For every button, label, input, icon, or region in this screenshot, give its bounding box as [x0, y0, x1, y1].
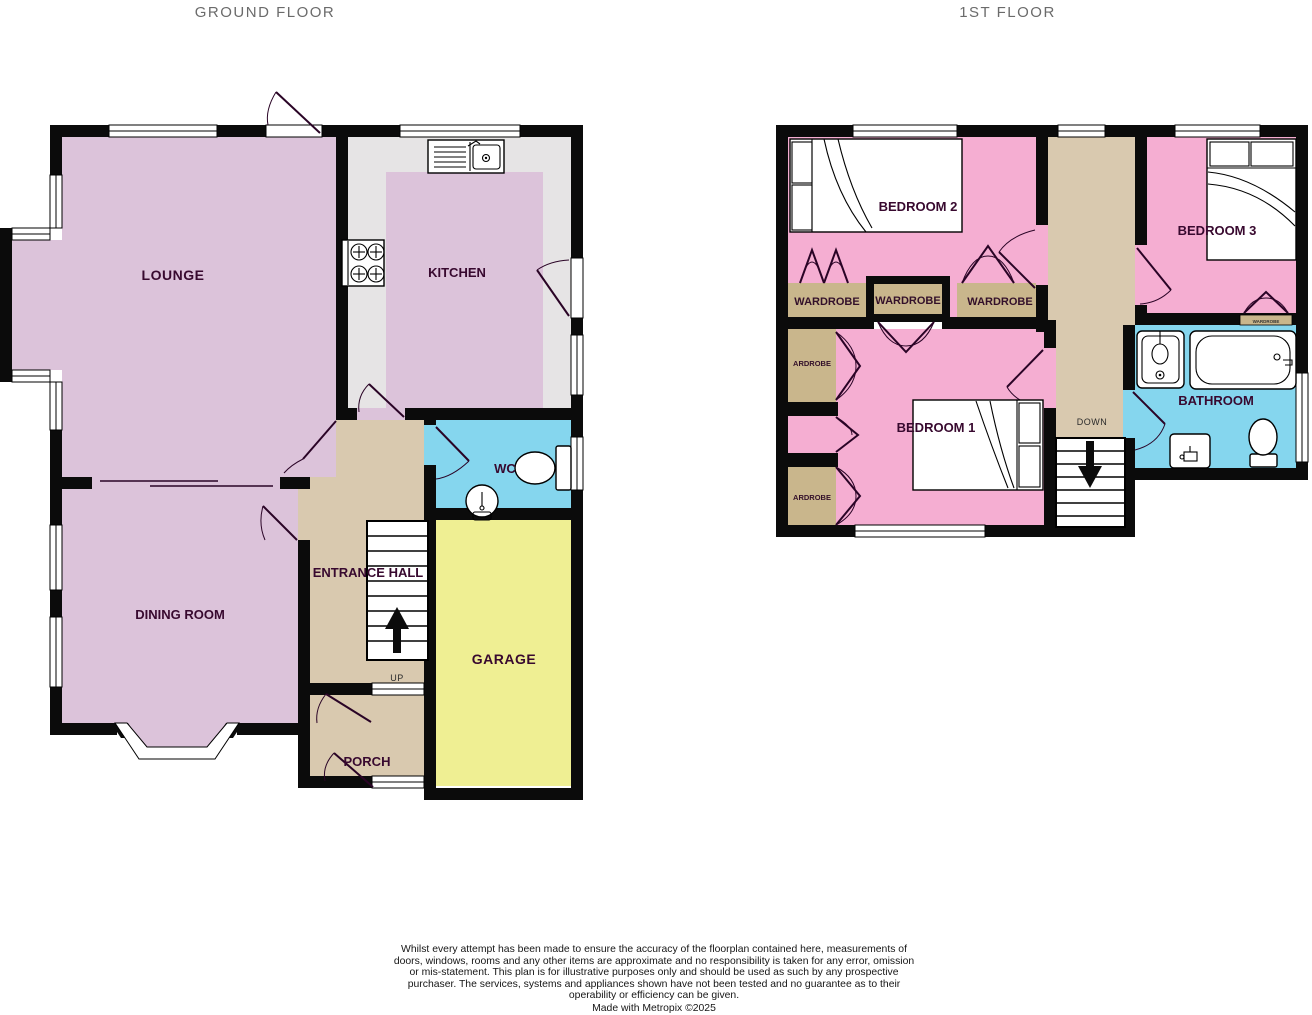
window	[109, 125, 217, 137]
toilet-icon	[1249, 419, 1277, 467]
bath-icon	[1190, 331, 1296, 389]
window	[571, 437, 583, 490]
wardrobe-label: WARDROBE	[794, 296, 859, 308]
window	[50, 525, 62, 590]
window	[1175, 125, 1260, 137]
stairs-down	[1056, 438, 1125, 527]
room-lounge-bay	[12, 240, 62, 370]
ground-floor-title: GROUND FLOOR	[155, 4, 375, 21]
wardrobe-label: WARDROBE	[875, 295, 940, 307]
window	[571, 335, 583, 395]
stairs-up	[367, 521, 428, 660]
window	[50, 617, 62, 687]
credit-text: Made with Metropix ©2025	[393, 1003, 915, 1015]
garage-label: GARAGE	[472, 651, 536, 667]
window	[50, 175, 62, 228]
bedroom-1-label: BEDROOM 1	[897, 420, 976, 435]
bathroom-label: BATHROOM	[1178, 393, 1254, 408]
bed-icon	[1207, 139, 1296, 260]
first-floor-plan: BEDROOM 2 BEDROOM 3 BEDROOM 1 BATHROOM W…	[776, 125, 1308, 537]
lounge-dining-opening	[92, 477, 280, 489]
floorplan-svg: LOUNGE KITCHEN DINING ROOM ENTRANCE HALL…	[0, 0, 1312, 1015]
porch-label: PORCH	[344, 754, 391, 769]
floorplan-page: GROUND FLOOR 1ST FLOOR	[0, 0, 1312, 1015]
dining-room-label: DINING ROOM	[135, 607, 225, 622]
kitchen-label: KITCHEN	[428, 265, 486, 280]
disclaimer-text: Whilst every attempt has been made to en…	[393, 944, 915, 1002]
bed-icon	[790, 139, 962, 232]
lounge-label: LOUNGE	[142, 267, 205, 283]
window	[1296, 373, 1308, 462]
window	[12, 370, 50, 382]
up-label: UP	[390, 673, 404, 683]
first-floor-title: 1ST FLOOR	[900, 4, 1115, 21]
vanity-unit-icon	[1170, 434, 1210, 468]
hall-upper	[348, 420, 424, 489]
bed-icon	[913, 400, 1043, 490]
bathroom-sink-icon	[1137, 331, 1184, 388]
ground-floor-rooms	[12, 137, 571, 786]
window	[853, 125, 957, 137]
porch-inner-opening	[372, 683, 424, 695]
sink-icon	[428, 140, 504, 173]
window	[400, 125, 520, 137]
wardrobe-label: WARDROBE	[967, 296, 1032, 308]
window	[50, 382, 62, 430]
stove-icon	[342, 240, 384, 286]
entrance-hall-label: ENTRANCE HALL	[313, 565, 424, 580]
down-label: DOWN	[1077, 417, 1108, 427]
window	[12, 228, 50, 240]
wardrobe-label-small: ARDROBE	[793, 493, 831, 502]
bedroom-2-label: BEDROOM 2	[879, 199, 958, 214]
window	[855, 525, 985, 537]
bedroom-3-label: BEDROOM 3	[1178, 223, 1257, 238]
porch-front-door	[372, 776, 424, 788]
ground-floor-plan: LOUNGE KITCHEN DINING ROOM ENTRANCE HALL…	[0, 92, 583, 800]
footer-disclaimer: Whilst every attempt has been made to en…	[393, 944, 915, 1015]
wc-label: WC	[494, 461, 516, 476]
cupboard-label-tiny: WARDROBE	[1253, 319, 1280, 324]
room-lounge	[62, 137, 336, 477]
room-dining	[62, 489, 298, 723]
kitchen-floor-center	[386, 172, 543, 408]
window	[1058, 125, 1105, 137]
wardrobe-label-small: ARDROBE	[793, 359, 831, 368]
